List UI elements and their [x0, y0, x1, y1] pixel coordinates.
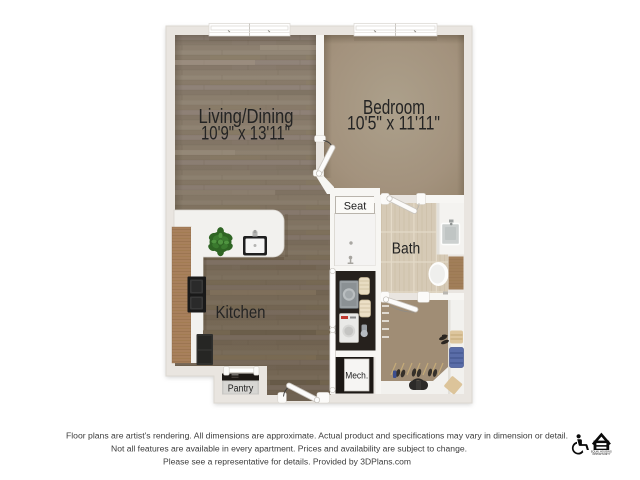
svg-text:Please see a representative fo: Please see a representative for details.…	[163, 458, 411, 467]
svg-text:10'5" x 11'11": 10'5" x 11'11"	[347, 114, 440, 135]
svg-text:OPPORTUNITY: OPPORTUNITY	[592, 453, 610, 456]
svg-text:Kitchen: Kitchen	[216, 302, 266, 322]
svg-text:Not all features are available: Not all features are available in every …	[111, 445, 467, 454]
svg-text:Mech.: Mech.	[345, 371, 368, 382]
svg-text:Seat: Seat	[344, 201, 367, 213]
svg-text:Pantry: Pantry	[228, 384, 254, 395]
svg-text:Bath: Bath	[392, 241, 421, 258]
svg-text:10'9" x 13'11": 10'9" x 13'11"	[201, 124, 290, 145]
svg-text:Floor plans are artist's rende: Floor plans are artist's rendering. All …	[66, 432, 568, 441]
